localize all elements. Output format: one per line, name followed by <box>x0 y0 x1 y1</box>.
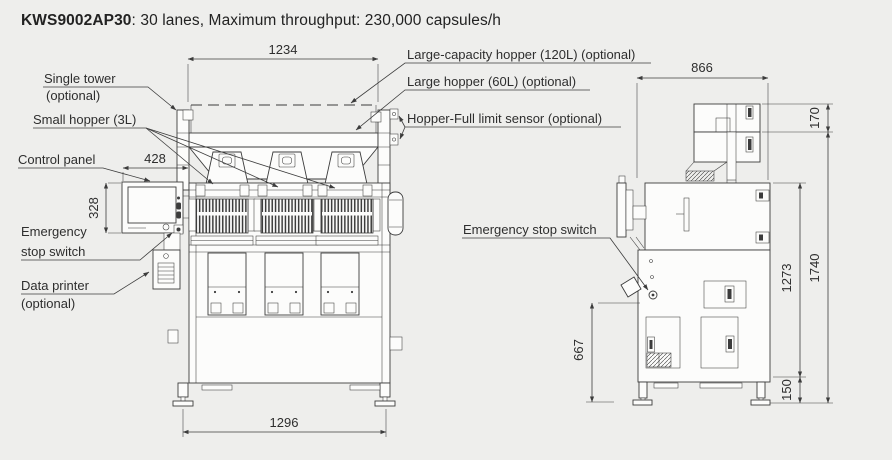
emergency-stop-side-label: Emergency stop switch <box>463 222 597 237</box>
hopper-full-sensor-label: Hopper-Full limit sensor (optional) <box>407 111 602 126</box>
dim-base-height: 150 <box>779 379 794 401</box>
panel-arm <box>633 206 646 219</box>
side-view-drawing <box>617 104 770 405</box>
dim-stop-switch-height: 667 <box>571 339 586 361</box>
control-panel-screen <box>128 187 176 223</box>
left-tab <box>168 330 178 343</box>
emergency-stop-front-label-2: stop switch <box>21 244 85 259</box>
dimension-667: 667 <box>571 303 640 402</box>
diagram-canvas: KWS9002AP30: 30 lanes, Maximum throughpu… <box>0 0 892 460</box>
hopper-full-sensor-lower <box>390 134 398 145</box>
callout-data-printer: Data printer (optional) <box>21 272 149 311</box>
side-control-panel <box>617 176 646 250</box>
callout-single-tower: Single tower (optional) <box>43 71 176 110</box>
technical-drawing: 1234 428 328 1296 866 170 <box>0 0 892 460</box>
small-hopper-3 <box>325 152 367 184</box>
large-hopper-label: Large hopper (60L) (optional) <box>407 74 576 89</box>
front-door-3 <box>321 253 359 315</box>
inspection-units <box>189 199 380 245</box>
hopper-120l-outline <box>191 105 376 133</box>
control-panel <box>122 182 189 250</box>
side-door-right <box>701 317 738 368</box>
side-door-left <box>646 317 680 368</box>
large-capacity-hopper-label: Large-capacity hopper (120L) (optional) <box>407 47 635 62</box>
dim-base-width: 1296 <box>270 415 299 430</box>
front-legs <box>173 383 395 406</box>
control-panel-label: Control panel <box>18 152 95 167</box>
side-lower-body <box>621 250 770 382</box>
data-printer-label-2: (optional) <box>21 296 75 311</box>
side-upper-housing <box>645 183 770 250</box>
front-doors <box>208 253 359 315</box>
side-cylinder <box>388 192 403 235</box>
small-hopper-1 <box>206 152 248 184</box>
callout-hopper-full-sensor: Hopper-Full limit sensor (optional) <box>399 111 621 139</box>
hopper-full-sensor-upper <box>390 109 398 119</box>
hopper-60l <box>189 133 378 147</box>
side-legs <box>633 382 770 405</box>
dim-total-height: 1740 <box>807 254 822 283</box>
dim-panel-width: 428 <box>144 151 166 166</box>
dimension-150: 150 <box>779 377 800 403</box>
dim-hopper-width: 1234 <box>269 42 298 57</box>
right-tab <box>390 337 402 350</box>
front-door-2 <box>265 253 303 315</box>
small-hopper-label: Small hopper (3L) <box>33 112 136 127</box>
single-tower-label-1: Single tower <box>44 71 116 86</box>
single-tower-label-2: (optional) <box>46 88 100 103</box>
inspection-unit-2 <box>254 199 320 245</box>
dimension-328: 328 <box>86 183 121 233</box>
single-tower <box>177 110 193 190</box>
dimension-1234: 1234 <box>188 42 378 102</box>
dim-upper-height: 1273 <box>779 264 794 293</box>
door-handle <box>684 198 689 231</box>
dimension-1296: 1296 <box>183 409 386 437</box>
inspection-unit-1 <box>189 199 255 245</box>
data-printer-label-1: Data printer <box>21 278 90 293</box>
dimension-170: 170 <box>762 104 833 132</box>
emergency-stop-front-label-1: Emergency <box>21 224 87 239</box>
emergency-stop-button-front <box>174 225 183 234</box>
front-door-1 <box>208 253 246 315</box>
inspection-unit-3 <box>314 199 380 245</box>
dim-panel-height: 328 <box>86 197 101 219</box>
dimension-1273: 1273 <box>773 183 806 377</box>
dim-depth: 866 <box>691 60 713 75</box>
dim-tower-section: 170 <box>807 107 822 129</box>
callout-control-panel: Control panel <box>18 152 150 181</box>
data-printer <box>153 250 180 289</box>
side-tower <box>686 104 760 183</box>
hopper-funnel <box>189 147 378 184</box>
